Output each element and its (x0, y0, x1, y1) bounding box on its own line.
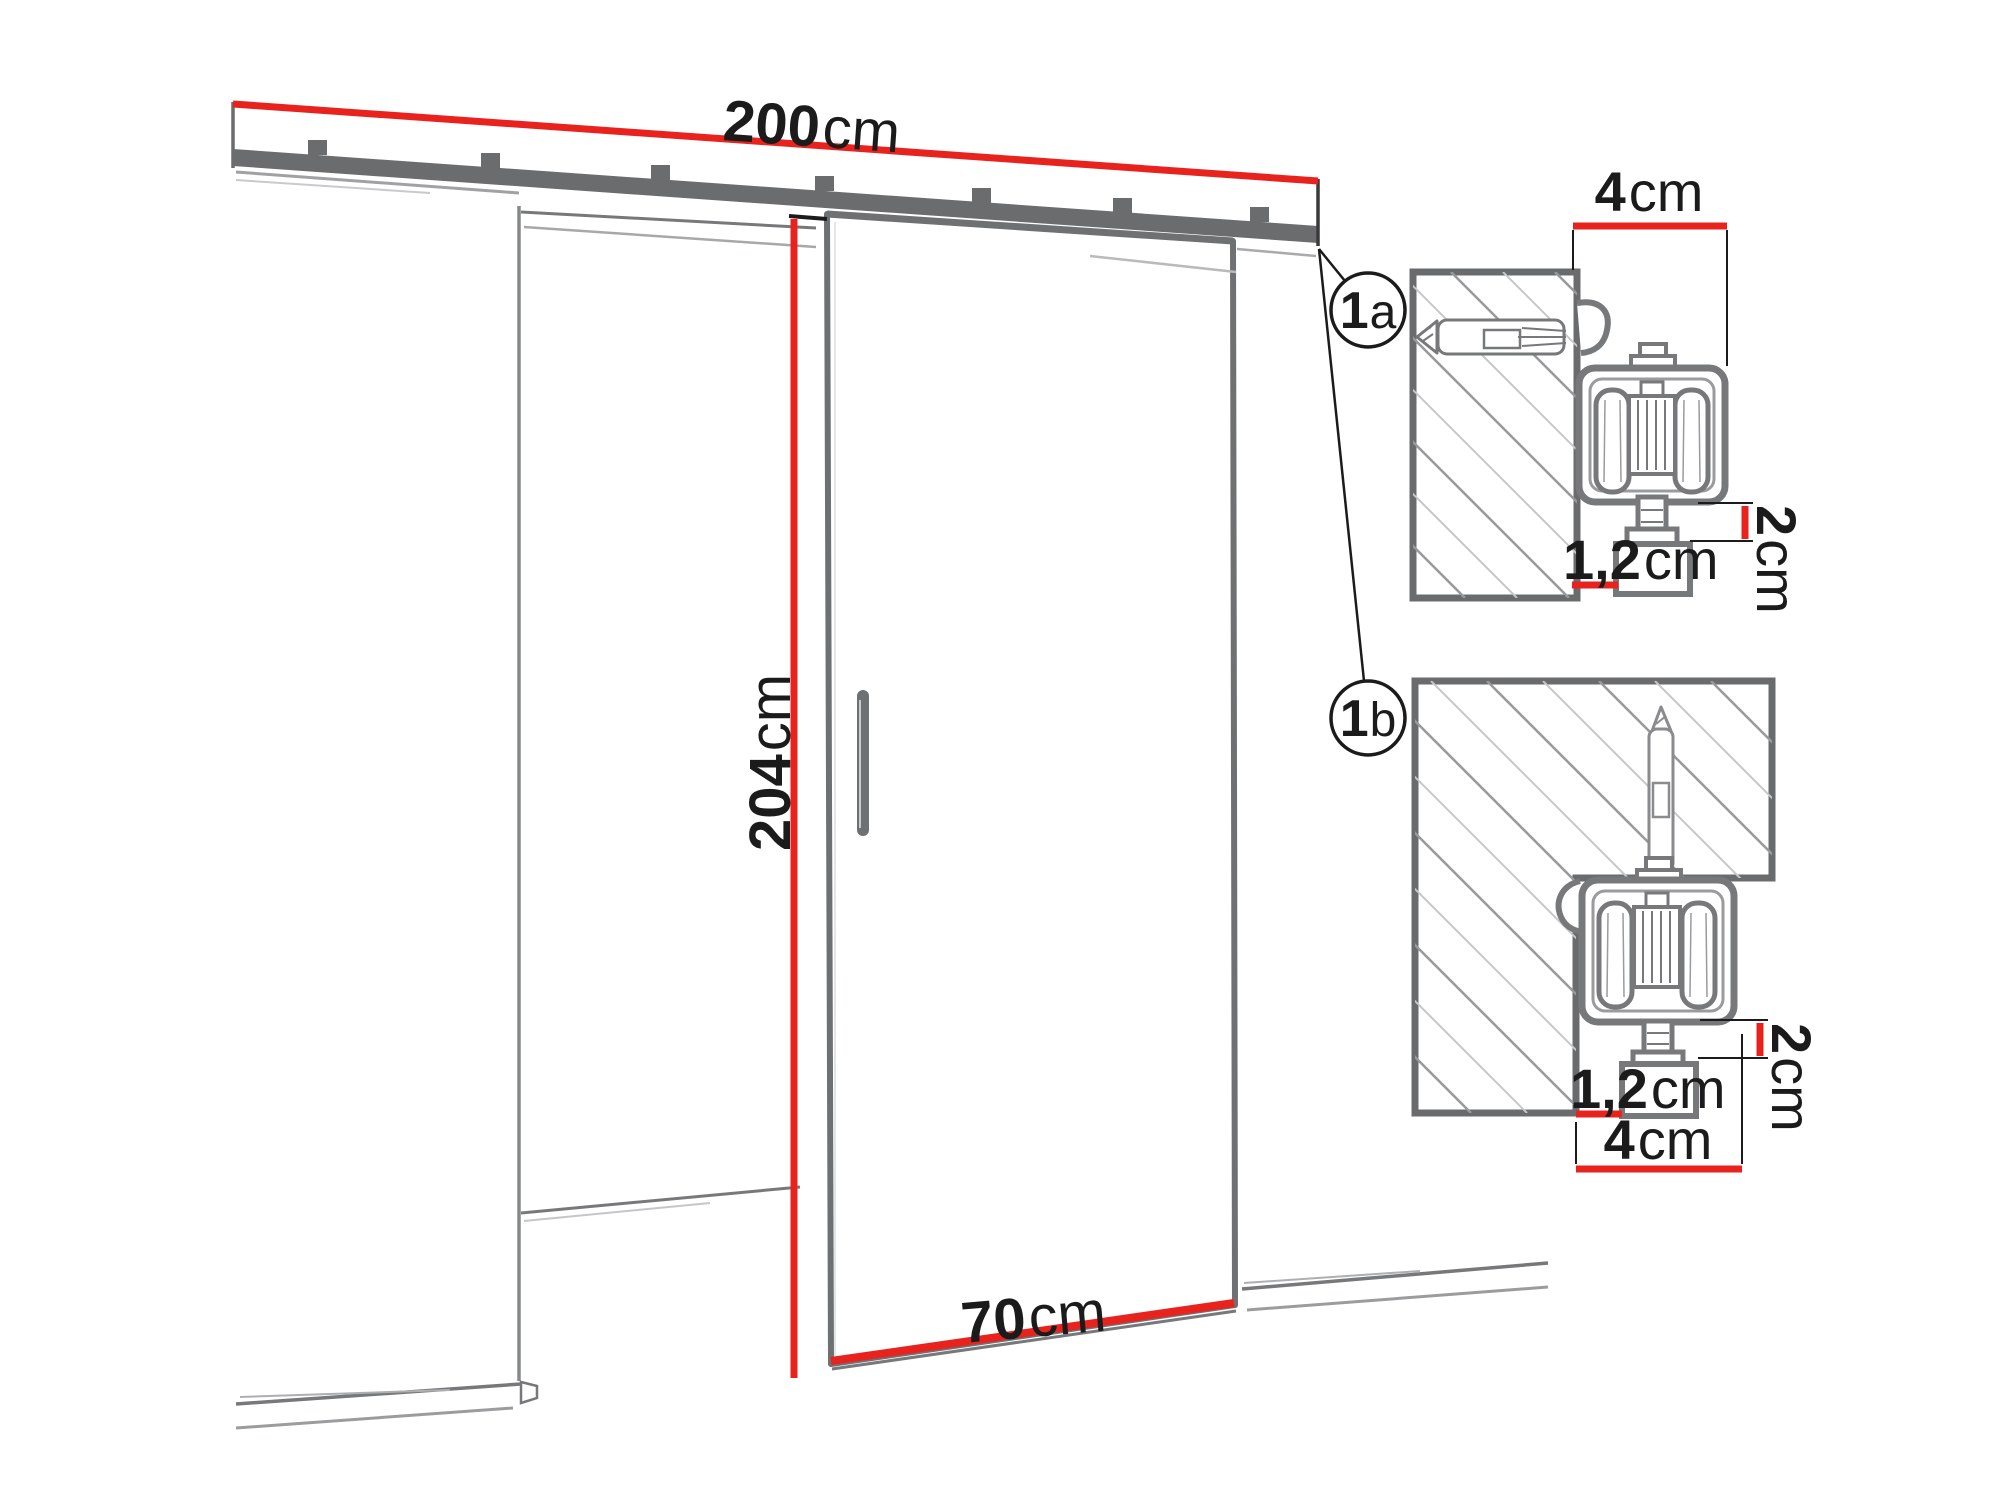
callout-1a-label: 1a (1340, 282, 1397, 340)
wall-shadow-line-right (1237, 249, 1316, 256)
diagram-canvas: 200cm 204cm 70cm 1a 1b (0, 0, 2000, 1500)
detail-1b-drop-label: 2cm (1760, 1023, 1823, 1132)
sliding-door-panel (827, 214, 1236, 1369)
callout-1a: 1a (1331, 273, 1405, 347)
back-skirting-line (521, 1187, 800, 1213)
detail-1b-track-width-label: 4cm (1604, 1108, 1713, 1171)
dimension-door-height-cap (789, 216, 827, 219)
wall-shadow-line-2 (236, 180, 430, 193)
detail-1a-drop-label: 2cm (1745, 505, 1808, 614)
detail-1a-clearance-label: 1,2cm (1563, 528, 1719, 591)
dimension-door-width-label: 70cm (958, 1279, 1108, 1356)
dimension-rail-width-label: 200cm (721, 88, 902, 165)
track-bracket-icon (1577, 302, 1608, 353)
door-face (827, 214, 1235, 1364)
skirting-left (236, 1382, 537, 1428)
callout-1b: 1b (1331, 681, 1405, 755)
screw-anchor-icon (1417, 320, 1566, 354)
opening-lintel-reveal (524, 227, 816, 247)
skirting-right (1242, 1263, 1548, 1310)
door-handle (857, 690, 869, 836)
detail-1a-dim-clearance: 1,2cm (1563, 528, 1719, 591)
dimension-door-height: 204cm (738, 216, 827, 1378)
dimension-door-height-label: 204cm (738, 674, 803, 851)
back-skirting-shadow (524, 1203, 710, 1221)
detail-1a-track-width-label: 4cm (1595, 160, 1704, 223)
callout-1b-label: 1b (1340, 690, 1397, 748)
skirting-left-endcap (521, 1382, 537, 1403)
opening-lintel (521, 212, 816, 228)
